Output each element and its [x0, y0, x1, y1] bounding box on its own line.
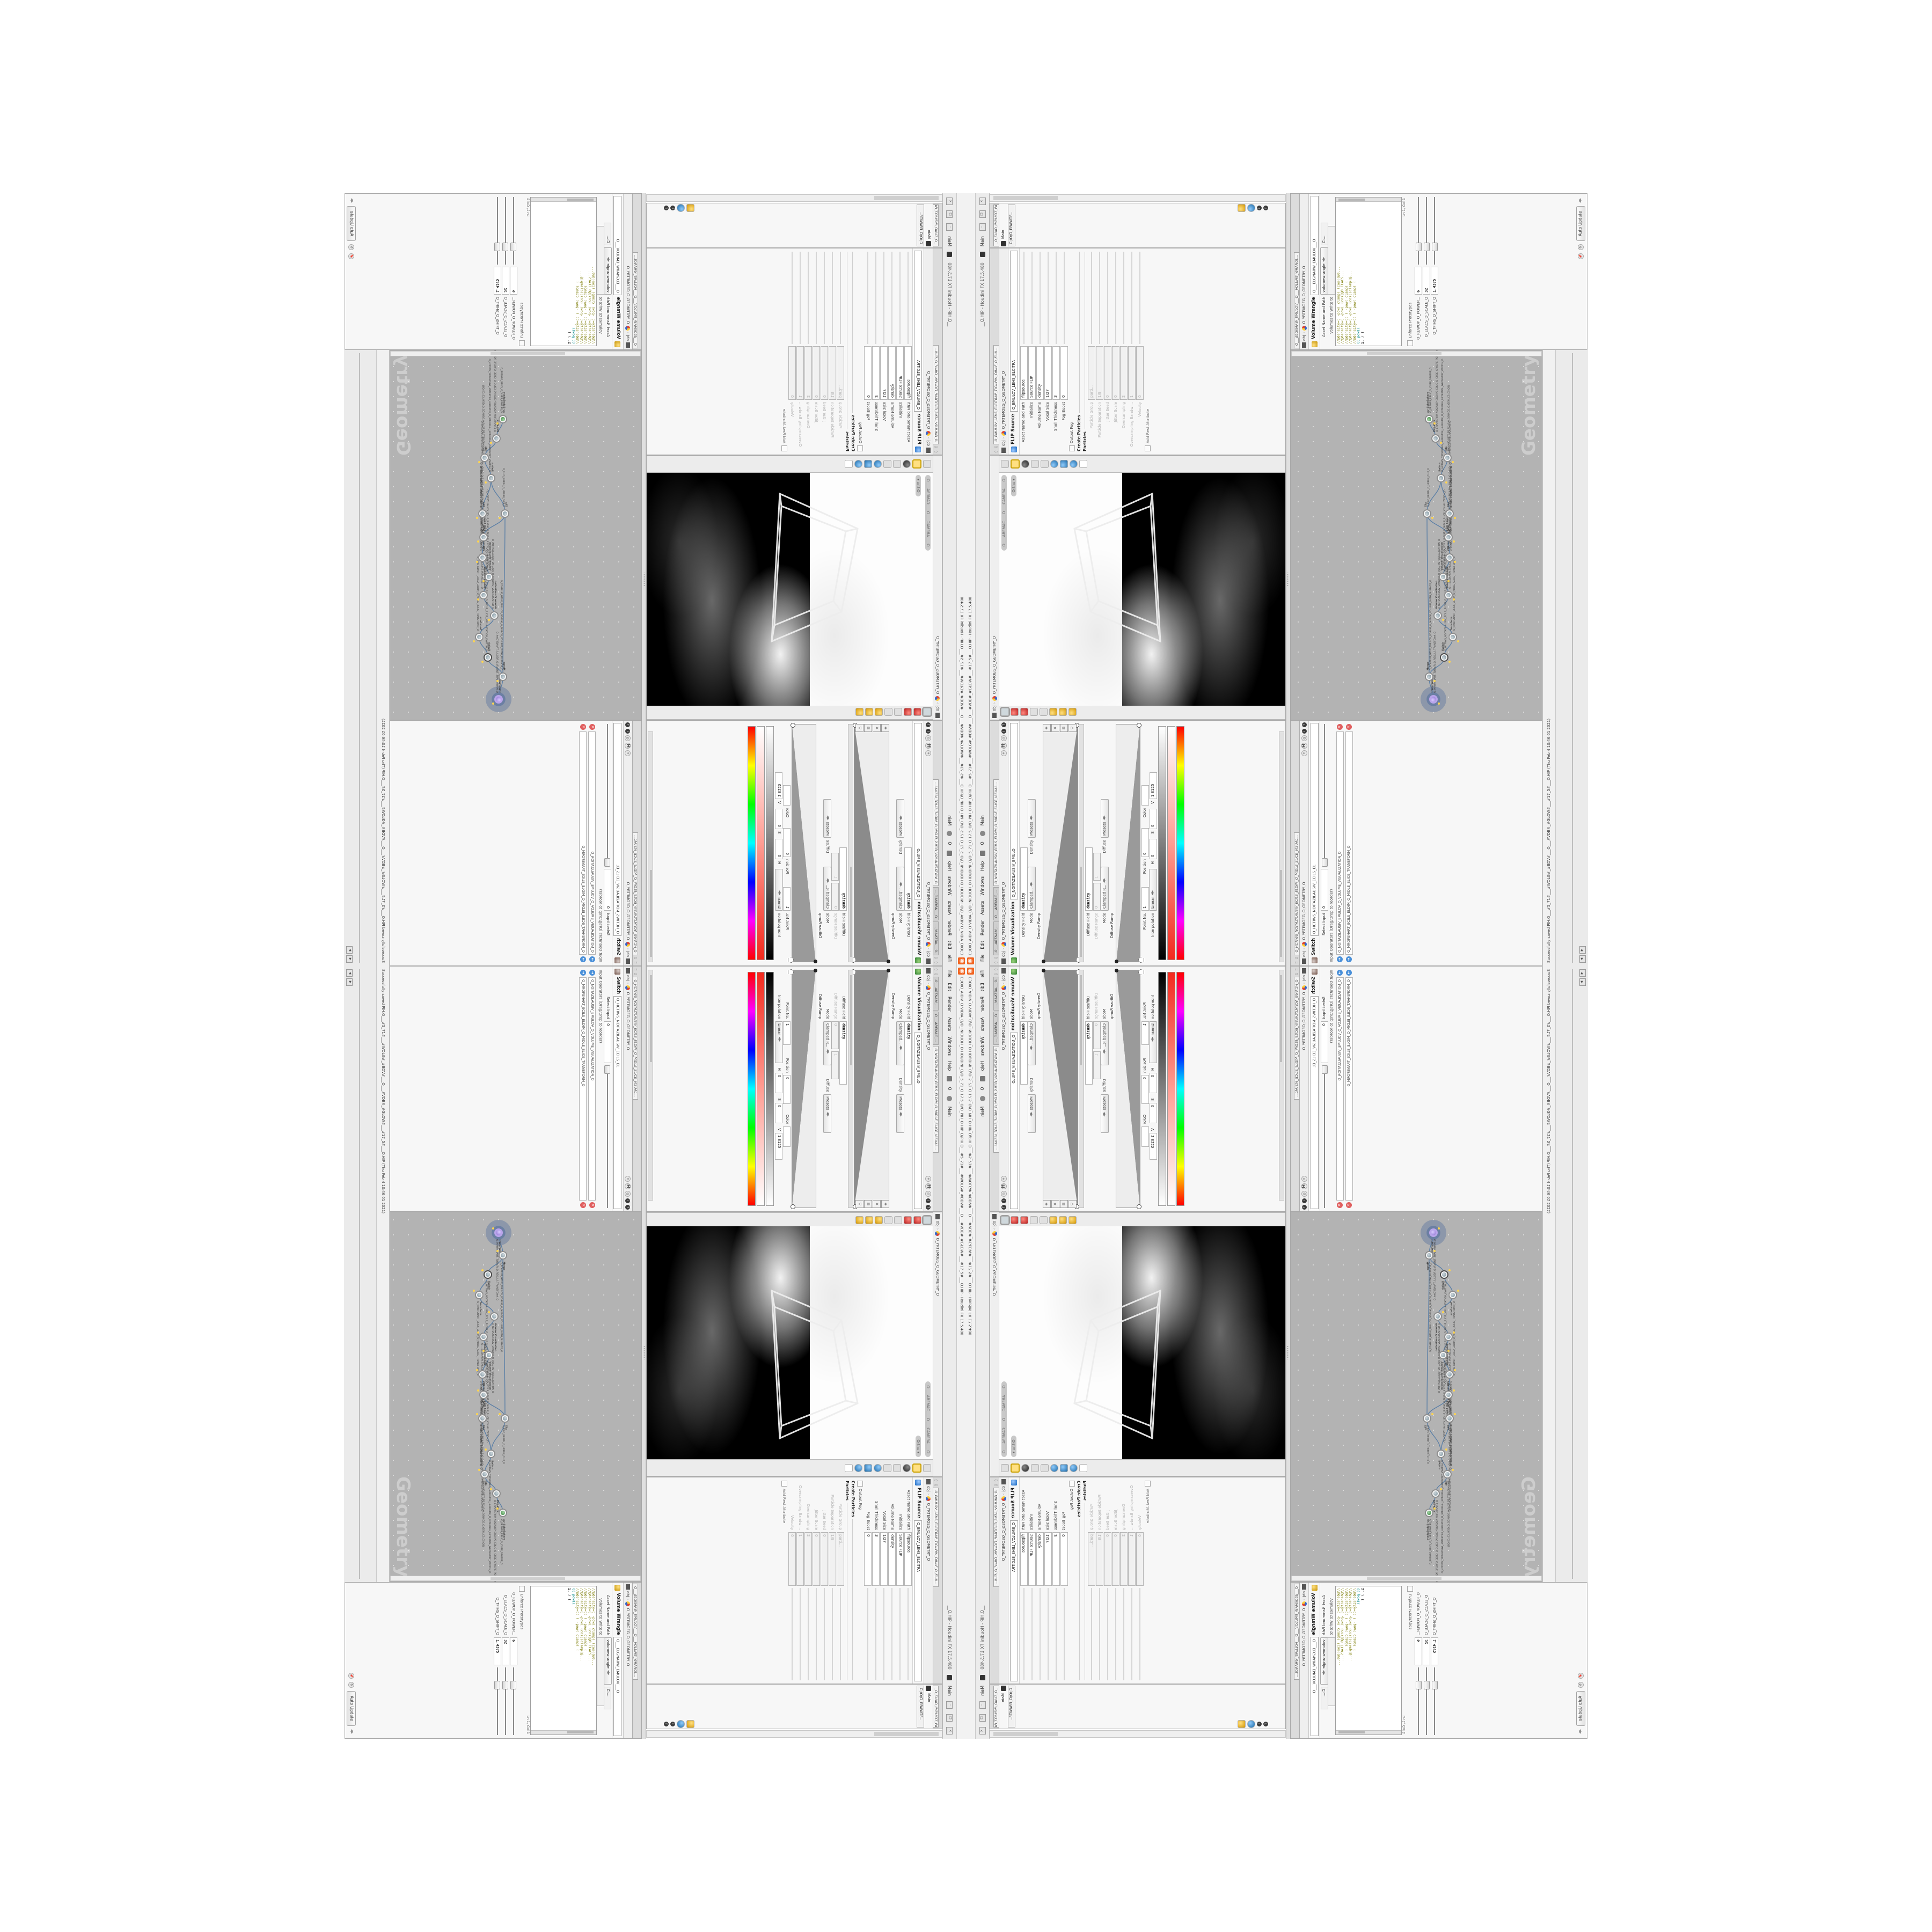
select-arrow-icon[interactable] [923, 1216, 931, 1224]
info-icon[interactable]: i [1001, 729, 1006, 734]
network-node[interactable] [475, 1291, 484, 1299]
ramp-scrollbar[interactable] [1079, 724, 1084, 962]
diffuse-range-max[interactable]: 1 [1093, 853, 1101, 881]
network-node[interactable] [475, 633, 484, 641]
play-back-icon[interactable]: ◀ [1579, 969, 1586, 977]
red-tool-2-icon[interactable] [1020, 708, 1028, 716]
asset-name-combo[interactable]: volumewrangle◀▶ [1320, 1637, 1328, 1685]
network-node[interactable] [1425, 1509, 1433, 1517]
title-bar[interactable]: @ C:/O/O_AIDIV_O VIDIA_O/O_INIDUOH_O HOU… [966, 966, 976, 1739]
param-slider[interactable] [1107, 1588, 1108, 1680]
operator-delete-icon[interactable]: ✕ [1337, 724, 1343, 730]
param-slider[interactable] [1031, 1588, 1033, 1680]
operator-name[interactable]: O_MROFSNART_ECILS_ELDIM_O_MIDLE_SLICE_TR… [1345, 731, 1353, 955]
playbar[interactable]: ◀ ▶ [1555, 966, 1588, 1582]
gear-icon[interactable]: ✳ [625, 750, 631, 756]
point-no-input[interactable]: 1 [784, 887, 791, 911]
magnifier-icon[interactable]: ◎ [1301, 735, 1307, 741]
tab-mantra[interactable]: O___ARTNAM_... [993, 921, 999, 955]
ortho-pill[interactable]: Ortho ▾ [916, 475, 921, 496]
magnifier-icon[interactable]: ◎ [625, 735, 631, 741]
param-slider[interactable] [900, 1588, 901, 1680]
param-input[interactable]: flipsource [1020, 1532, 1028, 1586]
node-flag-icon[interactable] [485, 1448, 487, 1451]
ramp-delete-button[interactable]: ✕ [873, 724, 881, 732]
hue-ramp-strip[interactable] [1176, 726, 1184, 960]
yellow-lasso-icon[interactable] [855, 1216, 863, 1224]
menu-file[interactable]: File [980, 970, 985, 977]
menu-file[interactable]: File [947, 970, 952, 977]
layout-grid-icon[interactable] [980, 851, 985, 856]
param-slider[interactable] [868, 1588, 869, 1680]
network-node[interactable] [499, 672, 507, 681]
network-vscrollbar[interactable] [390, 1576, 641, 1581]
code-vscrollbar[interactable] [531, 197, 596, 202]
mode-combo[interactable]: Clamped...◀▶ [1028, 867, 1036, 911]
vex-snippet-editor[interactable]: //@density=( -pow( clamp( (cos((@0...//@… [530, 197, 597, 346]
play-forward-icon[interactable]: ▶ [1579, 978, 1586, 986]
ramp-flip-button[interactable]: ⊞ [864, 724, 872, 732]
network-node[interactable] [484, 653, 492, 662]
info-icon[interactable]: i [1257, 206, 1262, 211]
node-flag-icon[interactable] [1442, 619, 1444, 621]
play-back-icon[interactable]: ◀ [346, 969, 353, 977]
breadcrumb[interactable]: obj › O_YRTEMOEG_O_GEOMETRY_O ✳ H ◎ i ? [999, 967, 1008, 1211]
node-flag-icon[interactable] [482, 580, 485, 582]
param-input[interactable]: 0 [1060, 346, 1068, 400]
presets-combo[interactable]: Presets◀▶ [1028, 1094, 1036, 1133]
operator-delete-icon[interactable]: ✕ [1337, 1202, 1343, 1208]
menu-windows[interactable]: Windows [980, 876, 985, 896]
file-path-field[interactable]: C:/O/O_ERAWTF... [917, 1686, 925, 1728]
node-flag-icon[interactable] [478, 1469, 480, 1471]
node-flag-icon[interactable] [1453, 598, 1455, 601]
spare-param-input[interactable]: 32 [502, 1637, 509, 1665]
node-flag-icon[interactable] [1442, 1311, 1444, 1313]
node-flag-icon[interactable] [1433, 422, 1436, 425]
param-input[interactable]: parti... [1088, 346, 1095, 400]
cube-icon[interactable] [864, 1464, 872, 1472]
play-back-icon[interactable]: ◀ [346, 955, 353, 963]
network-node[interactable] [478, 553, 487, 562]
network-node[interactable] [1445, 553, 1454, 562]
network-vscrollbar[interactable] [390, 351, 641, 356]
crosshair-icon[interactable] [980, 831, 985, 836]
node-flag-icon[interactable] [1454, 1369, 1456, 1371]
diffuse-range-min[interactable]: 0 [832, 1021, 839, 1049]
node-flag-icon[interactable] [482, 1350, 485, 1352]
network-editor-pane[interactable]: TransformO_MROFSNART_TLUSER_O_RESULT_TRA… [1290, 350, 1542, 720]
menu-assets[interactable]: Assets [980, 901, 985, 915]
desktop-selector-2[interactable]: Main [947, 1686, 952, 1696]
radial-menu-icon[interactable] [874, 1464, 882, 1472]
close-button[interactable]: ✕ [979, 197, 986, 205]
density-field-input[interactable]: density [905, 847, 912, 911]
param-input[interactable]: 0 [788, 346, 796, 400]
info-icon[interactable]: i [670, 206, 675, 211]
param-slider[interactable] [1031, 252, 1033, 344]
gear-icon[interactable]: ✳ [1301, 750, 1307, 756]
position-input[interactable]: 0 [784, 1075, 791, 1104]
asset-name-combo[interactable]: volumewrangle◀▶ [1320, 247, 1328, 295]
position-input[interactable]: 0 [784, 828, 791, 857]
radial-menu-icon[interactable] [874, 460, 882, 469]
radial-menu-icon[interactable] [1247, 204, 1255, 213]
pane-down-icon[interactable]: ⇩ [994, 445, 999, 449]
gear-icon[interactable]: ✳ [1001, 750, 1007, 756]
help-icon[interactable]: ? [626, 1205, 631, 1210]
asset-path-field[interactable]: C:... [604, 1687, 612, 1709]
node-flag-icon[interactable] [477, 1389, 479, 1392]
file-path-field[interactable]: C:/O/O_ERAWTF... [1008, 1686, 1015, 1728]
select-input-field[interactable]: 0 [604, 869, 612, 911]
diffuse-presets-combo[interactable]: Presets◀▶ [823, 799, 831, 838]
radial-menu-icon[interactable] [677, 204, 685, 213]
ramp-delete-button[interactable]: ✕ [1051, 724, 1059, 732]
add-rest-attribute-checkbox[interactable] [781, 1481, 787, 1487]
pane-down-icon[interactable]: ⇩ [1294, 956, 1299, 960]
houdini-help-icon[interactable]: H [1001, 1183, 1007, 1189]
operator-jump-icon[interactable]: ➜ [589, 956, 595, 962]
pointer-pill-icon[interactable] [893, 1464, 901, 1472]
spare-param-slider[interactable] [505, 197, 506, 265]
grayscale-ramp-strip[interactable] [766, 972, 774, 1206]
wrangle-name-field[interactable]: O___ELGNARW_EMULOV___O [614, 196, 622, 295]
network-node[interactable] [1439, 573, 1447, 581]
spare-param-slider[interactable] [1426, 197, 1427, 265]
diffuse-ramp-widget[interactable] [792, 724, 816, 962]
param-slider[interactable] [792, 252, 793, 344]
pane-grip-icon[interactable]: ◀▶ [349, 198, 353, 203]
flip-breadcrumb[interactable]: obj › O_YRTEMOEG_O_GEOMETRY_O [999, 248, 1008, 455]
tab-switch[interactable]: O_HCTIWS_NOITAZILAUSIV_ECILS_ELDIM_O_MID… [633, 832, 638, 955]
param-input[interactable]: density [889, 346, 896, 400]
tab-volume-wrangle[interactable]: O___ELGNARW_EMULOV___O___VOLUME_WRANGL..… [633, 252, 638, 348]
breadcrumb[interactable]: obj › O_YRTEMOEG_O_GEOMETRY_O ✳ H ◎ i ? [924, 721, 933, 965]
pane-hscrollbar[interactable] [648, 731, 653, 962]
density-field-input[interactable]: density [1020, 1021, 1028, 1085]
code-vscrollbar[interactable] [531, 1730, 596, 1735]
help-icon[interactable]: ? [1302, 1205, 1307, 1210]
pane-up-icon[interactable]: ⇧ [994, 968, 999, 971]
node-flag-icon[interactable] [476, 517, 478, 519]
menu-file[interactable]: File [947, 955, 952, 962]
tab-switch[interactable]: O_HCTIWS_NOITAZILAUSIV_ECILS_ELDIM_O_MID… [633, 977, 638, 1099]
node-flag-icon[interactable] [1448, 661, 1451, 663]
param-input[interactable]: 1/9 [829, 346, 836, 400]
td-badge-icon[interactable] [1030, 708, 1038, 716]
operator-jump-icon[interactable]: ➜ [589, 970, 595, 976]
yellow-lasso-icon[interactable] [1069, 708, 1077, 716]
viewport-canvas[interactable]: O ___AREMAC___ O ___CAMERA___ O Ortho ▾ [647, 1226, 933, 1460]
ramp-flip-button[interactable]: ⊞ [1060, 724, 1068, 732]
magnifier-icon[interactable]: ◎ [625, 1191, 631, 1197]
menu-windows[interactable]: Windows [947, 876, 952, 896]
node-flag-icon[interactable] [1433, 1250, 1436, 1252]
ramp-add-button[interactable]: ✚ [1043, 1200, 1051, 1208]
playbar[interactable]: ◀ ▶ [1555, 350, 1588, 966]
network-node[interactable] [492, 434, 501, 443]
red-tool-icon[interactable] [1011, 1216, 1019, 1224]
param-input[interactable]: 1/9 [829, 1532, 836, 1586]
param-input[interactable]: 0 [865, 346, 872, 400]
node-flag-icon[interactable] [1452, 1469, 1454, 1471]
network-editor-pane[interactable]: TransformO_MROFSNART_TLUSER_O_RESULT_TRA… [1290, 1212, 1542, 1582]
network-vscrollbar[interactable] [1291, 351, 1542, 356]
param-slider[interactable] [1048, 1588, 1049, 1680]
hue-input[interactable]: 0 [775, 1073, 783, 1093]
enforce-prototypes-checkbox[interactable] [1407, 1586, 1413, 1592]
red-tool-icon[interactable] [1011, 708, 1019, 716]
viewport-breadcrumb[interactable]: obj › O_YRTEMOEG_O_GEOMETRY_O [990, 1212, 999, 1476]
cube-icon[interactable] [1060, 1464, 1068, 1472]
operator-name[interactable]: O_MROFSNART_ECILS_ELDIM_O_MIDLE_SLICE_TR… [1345, 977, 1353, 1201]
red-tool-2-icon[interactable] [904, 1216, 912, 1224]
param-input[interactable]: 0 [813, 346, 820, 400]
param-slider[interactable] [876, 1588, 877, 1680]
tab-visualization[interactable]: O_NOITAZILAUSIV_ECILS_ELDIM_O_MIDLE_SLIC… [933, 779, 939, 886]
enforce-prototypes-checkbox[interactable] [1407, 340, 1413, 346]
param-slider[interactable] [1048, 252, 1049, 344]
param-input[interactable]: parti... [1088, 1532, 1095, 1586]
param-slider[interactable] [800, 1588, 801, 1680]
gear-icon[interactable]: ✳ [1001, 1176, 1007, 1182]
close-button[interactable]: ✕ [947, 1727, 953, 1735]
menu-edit[interactable]: Edit [947, 983, 952, 991]
desktop-selector-2[interactable]: Main [947, 236, 952, 246]
param-input[interactable]: 1/9 [1096, 346, 1103, 400]
param-slider[interactable] [816, 252, 817, 344]
param-input[interactable]: 2 [804, 346, 812, 400]
param-input[interactable]: 2 [1120, 1532, 1128, 1586]
spare-param-input[interactable]: 32 [1423, 267, 1430, 295]
info-icon[interactable]: i [670, 1722, 675, 1726]
node-flag-icon[interactable] [1431, 517, 1433, 519]
spare-param-input[interactable]: 6 [510, 1637, 517, 1665]
select-input-slider[interactable] [608, 724, 609, 867]
pane-up-icon[interactable]: ⇧ [994, 961, 999, 964]
help-icon[interactable]: ? [664, 206, 669, 211]
param-input[interactable]: Source FLIP [897, 346, 904, 400]
auto-update-button[interactable]: Auto Update [1576, 206, 1585, 241]
density-field-input[interactable]: density [905, 1021, 912, 1085]
output-fog-checkbox[interactable] [1069, 1481, 1075, 1487]
ramp-scrollbar[interactable] [848, 724, 853, 962]
node-flag-icon[interactable] [499, 517, 501, 519]
volumes-to-write-field[interactable] [1328, 226, 1335, 295]
diffuse-ramp-widget[interactable] [1116, 970, 1140, 1208]
flip-breadcrumb[interactable]: obj › O_YRTEMOEG_O_GEOMETRY_O [924, 1477, 933, 1684]
viewport-breadcrumb[interactable]: obj › O_YRTEMOEG_O_GEOMETRY_O [990, 456, 999, 720]
gear-icon[interactable]: ✳ [926, 1176, 932, 1182]
box-3d-icon[interactable] [1041, 460, 1049, 469]
menu-file[interactable]: File [980, 955, 985, 962]
interpolation-combo[interactable]: Linear◀▶ [775, 869, 783, 911]
playbar[interactable]: ◀ ▶ [344, 350, 377, 966]
red-tool-2-icon[interactable] [904, 708, 912, 716]
network-node[interactable] [490, 1312, 499, 1321]
param-slider[interactable] [1099, 252, 1100, 344]
pane-down-icon[interactable]: ⇩ [933, 956, 938, 960]
eye-icon[interactable] [1001, 460, 1009, 469]
param-slider[interactable] [808, 252, 809, 344]
dark-sphere-icon[interactable] [1021, 460, 1029, 469]
recycle-icon[interactable]: ↻ [1578, 1682, 1584, 1688]
param-input[interactable]: flipsource [905, 346, 912, 400]
network-node[interactable] [487, 474, 495, 482]
blue-sphere-icon[interactable] [854, 460, 862, 469]
flip-breadcrumb[interactable]: obj › O_YRTEMOEG_O_GEOMETRY_O [924, 248, 933, 455]
crosshair-icon[interactable] [947, 1096, 953, 1101]
ramp-add-button[interactable]: ✚ [881, 724, 889, 732]
auto-update-button[interactable]: Auto Update [347, 206, 356, 241]
pin-icon[interactable]: 📌 [348, 253, 354, 259]
operator-delete-icon[interactable]: ✕ [580, 724, 586, 730]
close-button[interactable]: ✕ [979, 1727, 986, 1735]
viewport-canvas[interactable]: O ___AREMAC___ O ___CAMERA___ O Ortho ▾ [999, 1226, 1285, 1460]
node-name-field[interactable]: O_NOITAZILAUSIV_EMULO [914, 1033, 923, 1209]
select-input-field[interactable]: 0 [1321, 1021, 1328, 1063]
network-node[interactable] [1445, 1370, 1454, 1379]
play-forward-icon[interactable]: ▶ [346, 946, 353, 954]
houdini-help-icon[interactable]: H [1301, 743, 1307, 749]
breadcrumb[interactable]: obj › O_YRTEMOEG_O_GEOMETRY_O ✳ H ◎ i ? [999, 721, 1008, 965]
pane-up-icon[interactable]: ⇧ [1294, 961, 1299, 964]
yellow-select-icon[interactable] [1059, 1216, 1067, 1224]
ramp-scrollbar[interactable] [1079, 970, 1084, 1208]
dark-sphere-icon[interactable] [903, 460, 911, 469]
tab-flip-source[interactable]: O_EMULOV_LEHS_ELCITRAP_TICILPMI_DIULF_O_… [993, 345, 999, 444]
ramp-flip-button[interactable]: ⊞ [1060, 1200, 1068, 1208]
cube-icon[interactable] [1060, 460, 1068, 469]
node-flag-icon[interactable] [499, 1413, 501, 1415]
wrangle-breadcrumb[interactable]: obj › O_YRTEMOEG_O_GEOMETRY_O [623, 194, 632, 349]
node-flag-icon[interactable] [1457, 640, 1459, 642]
volumes-to-write-field[interactable] [597, 1637, 604, 1706]
wrangle-name-field[interactable]: O___ELGNARW_EMULOV___O [1311, 196, 1319, 295]
play-forward-icon[interactable]: ▶ [1579, 946, 1586, 954]
network-node[interactable] [1444, 591, 1453, 599]
position-input[interactable]: 0 [1141, 1075, 1149, 1104]
grayscale-ramp-strip[interactable] [766, 726, 774, 960]
diffuse-presets-combo[interactable]: Presets◀▶ [823, 1094, 831, 1133]
help-icon[interactable]: ? [1263, 206, 1268, 211]
network-node[interactable] [499, 1251, 507, 1260]
layout-grid-icon[interactable] [947, 851, 953, 856]
cube-icon[interactable] [864, 460, 872, 469]
pane-up-icon[interactable]: ⇧ [933, 1479, 938, 1482]
select-input-slider[interactable] [1324, 1065, 1325, 1208]
network-editor-pane[interactable]: TransformO_MROFSNART_TLUSER_O_RESULT_TRA… [390, 1212, 642, 1582]
blue-sphere-icon[interactable] [854, 1464, 862, 1472]
operator-delete-icon[interactable]: ✕ [580, 1202, 586, 1208]
restore-button[interactable]: ❐ [979, 210, 986, 218]
flip-breadcrumb[interactable]: obj › O_YRTEMOEG_O_GEOMETRY_O [999, 1477, 1008, 1684]
pane-up-icon[interactable]: ⇧ [933, 961, 938, 964]
breadcrumb-node[interactable]: O_YRTEMOEG_O_GEOMETRY_O [1001, 882, 1006, 940]
select-input-slider[interactable] [608, 1065, 609, 1208]
network-node[interactable] [501, 509, 509, 518]
param-input[interactable]: 0 [821, 1532, 828, 1586]
mode-combo[interactable]: Clamped...◀▶ [1028, 1021, 1036, 1065]
hue-input[interactable]: 0 [1150, 1073, 1157, 1093]
node-flag-icon[interactable] [473, 640, 475, 642]
node-flag-icon[interactable] [477, 598, 479, 601]
diffuse-range-min[interactable]: 0 [1093, 883, 1101, 911]
node-flag-icon[interactable] [1453, 1331, 1455, 1334]
sat-input[interactable]: 0 [775, 1103, 783, 1123]
gray-tool-icon[interactable] [884, 708, 892, 716]
node-flag-icon[interactable] [1453, 1389, 1455, 1392]
param-input[interactable]: 1/27 [881, 1532, 888, 1586]
recycle-icon[interactable]: ↻ [1578, 244, 1584, 250]
red-ramp-strip[interactable] [1167, 726, 1175, 960]
param-input[interactable]: Source FLIP [1028, 346, 1036, 400]
node-flag-icon[interactable] [478, 461, 480, 463]
white-square-icon[interactable] [1079, 460, 1087, 469]
param-slider[interactable] [792, 1588, 793, 1680]
tab-fluid-implicit[interactable]: _O_FLUID_IMPLICIT_PARTI... [933, 204, 939, 246]
gray-tool-icon[interactable] [884, 1216, 892, 1224]
tab-flip-source[interactable]: O_EMULOV_LEHS_ELCITRAP_TICILPMI_DIULF_O_… [933, 345, 939, 444]
ramp-collapse-button[interactable]: ▽ [1069, 724, 1077, 732]
ramp-delete-button[interactable]: ✕ [873, 1200, 881, 1208]
network-node[interactable] [487, 1450, 495, 1458]
gear-icon[interactable]: ✳ [625, 1176, 631, 1182]
switch-name-field[interactable]: O_HCTIWS_NOITAZILAUSIV_ECILS_EL [614, 723, 622, 936]
vex-snippet-editor[interactable]: //@density=( -pow( clamp( (cos((@0...//@… [530, 1586, 597, 1735]
diffuse-ramp-widget[interactable] [792, 970, 816, 1208]
houdini-help-icon[interactable]: H [926, 743, 932, 749]
auto-update-button[interactable]: Auto Update [1576, 1691, 1585, 1726]
param-slider[interactable] [1056, 252, 1057, 344]
pane-hscrollbar[interactable] [1279, 970, 1284, 1201]
spare-param-slider[interactable] [505, 1667, 506, 1735]
minimize-button[interactable]: – [947, 1701, 953, 1709]
param-slider[interactable] [1115, 252, 1116, 344]
position-input[interactable]: 0 [1141, 828, 1149, 857]
operator-name[interactable]: O_NOITAZILAUSIV_EMULOV_O_VOLUME_VISUALIZ… [1336, 731, 1344, 955]
tab-mantra[interactable]: O___ARTNAM_... [933, 921, 939, 955]
houdini-help-icon[interactable]: H [926, 1183, 932, 1189]
param-slider[interactable] [868, 252, 869, 344]
pane-down-icon[interactable]: ⇩ [933, 972, 938, 976]
yellow-spray-icon[interactable] [1238, 204, 1246, 213]
houdini-help-icon[interactable]: H [625, 1183, 631, 1189]
interpolation-combo[interactable]: Linear◀▶ [775, 1021, 783, 1063]
yellow-lasso-icon[interactable] [855, 708, 863, 716]
recycle-icon[interactable]: ↻ [348, 244, 354, 250]
operator-name[interactable]: O_MROFSNART_ECILS_ELDIM_O_MIDLE_SLICE_TR… [580, 731, 587, 955]
magnifier-icon[interactable]: ◎ [926, 1191, 932, 1197]
help-icon[interactable]: ? [1302, 722, 1307, 727]
param-slider[interactable] [1139, 252, 1140, 344]
node-flag-icon[interactable] [481, 1269, 484, 1271]
sat-input[interactable]: 0 [775, 809, 783, 829]
param-slider[interactable] [1091, 1588, 1092, 1680]
param-input[interactable]: 1 [1128, 346, 1136, 400]
menu-render[interactable]: Render [980, 997, 985, 1012]
network-node[interactable] [1445, 1414, 1454, 1423]
switch-name-field[interactable]: O_HCTIWS_NOITAZILAUSIV_ECILS_EL [614, 996, 622, 1209]
right-edge-scrollbar[interactable] [990, 1730, 1286, 1738]
diffuse-range-min[interactable]: 0 [1093, 1021, 1101, 1049]
pane-grip-icon[interactable]: ◀▶ [1579, 1729, 1583, 1734]
play-forward-icon[interactable]: ▶ [346, 978, 353, 986]
gear-icon[interactable]: ✳ [926, 750, 932, 756]
ortho-pill[interactable]: Ortho ▾ [916, 1436, 921, 1457]
network-node[interactable] [1437, 474, 1445, 482]
